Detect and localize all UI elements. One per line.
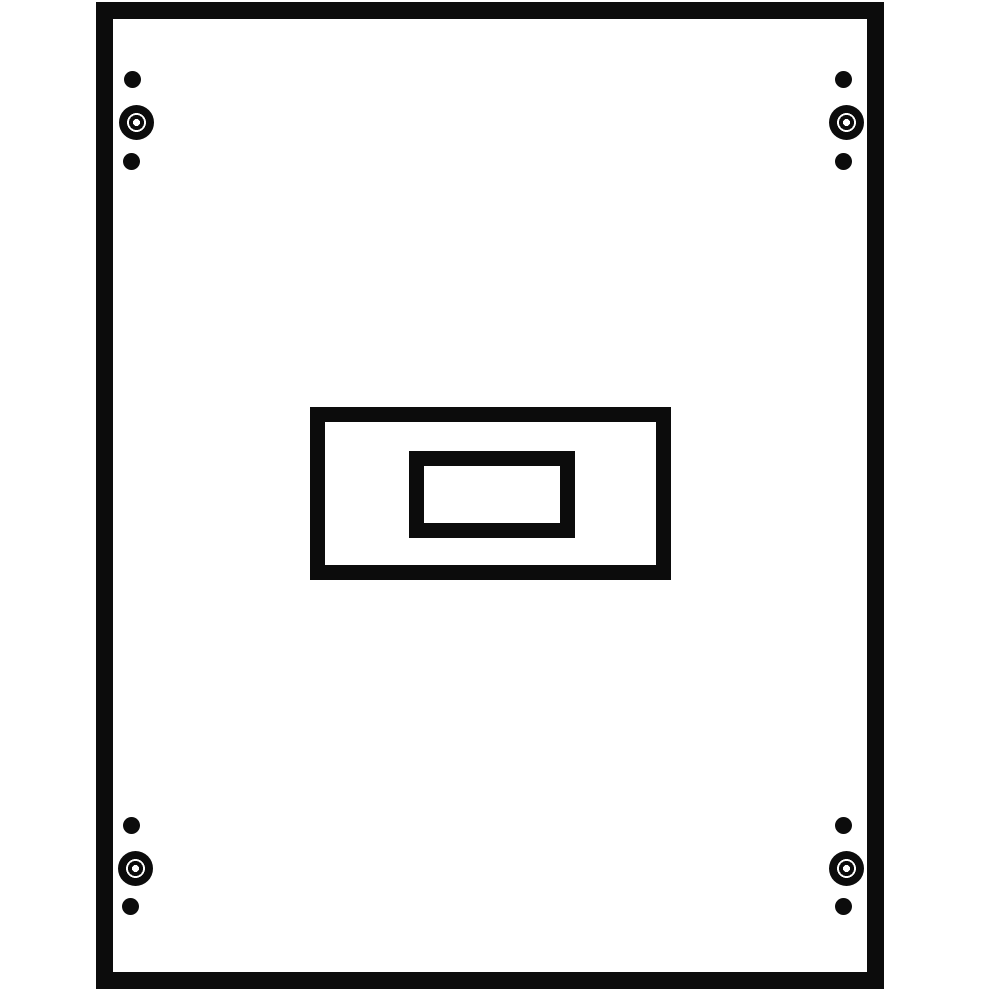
screw-hole-small-icon	[835, 71, 852, 88]
screw-head-large-icon	[118, 851, 153, 886]
screw-hole-small-icon	[122, 898, 139, 915]
screw-hole-small-icon	[835, 153, 852, 170]
screw-head-large-icon	[829, 105, 864, 140]
screw-hole-small-icon	[124, 71, 141, 88]
screw-hole-small-icon	[835, 817, 852, 834]
screw-hole-small-icon	[123, 153, 140, 170]
screw-hole-small-icon	[123, 817, 140, 834]
screw-hole-small-icon	[835, 898, 852, 915]
panel-technical-drawing	[0, 0, 1000, 1000]
screw-head-large-icon	[119, 105, 154, 140]
screw-head-large-icon	[829, 851, 864, 886]
screw-holes-layer	[0, 0, 1000, 1000]
